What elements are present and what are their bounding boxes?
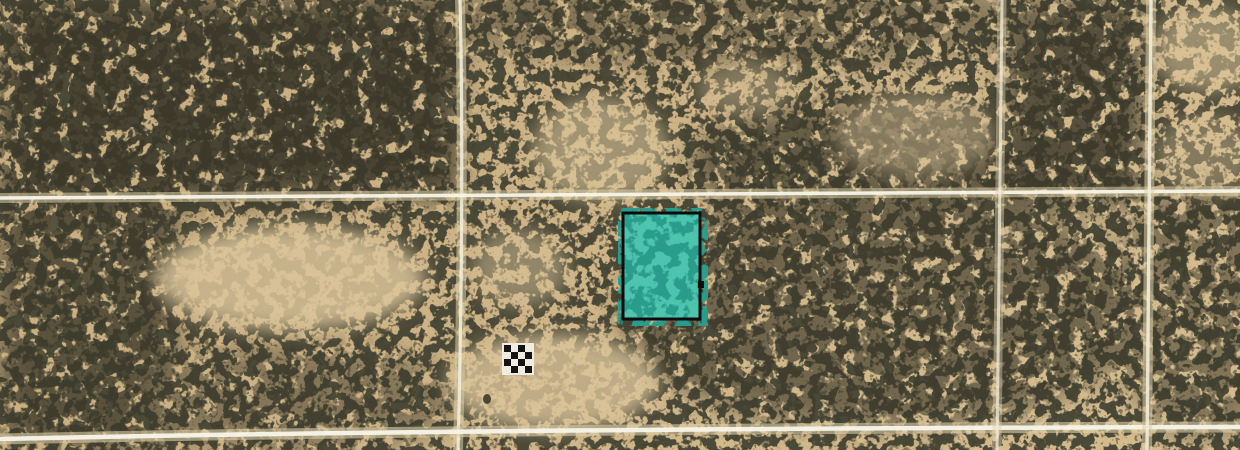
marker-cell [504, 359, 511, 366]
parcel-highlight[interactable] [623, 213, 704, 319]
marker-cell [525, 352, 532, 359]
marker-cell [525, 359, 532, 366]
parcel-fill [623, 213, 700, 319]
marker-cell [518, 366, 525, 373]
marker-cell [504, 345, 511, 352]
marker-cell [511, 366, 518, 373]
survey-marker [502, 343, 534, 375]
satellite-image [0, 0, 1240, 450]
marker-cell [518, 345, 525, 352]
survey-marker-cells [504, 345, 532, 373]
marker-cell [511, 359, 518, 366]
marker-cell [518, 352, 525, 359]
marker-cell [525, 366, 532, 373]
marker-cell [504, 352, 511, 359]
parcel-border-notch [698, 281, 704, 288]
marker-cell [518, 359, 525, 366]
map-canvas[interactable] [0, 0, 1240, 450]
marker-cell [511, 345, 518, 352]
marker-cell [504, 366, 511, 373]
marker-cell [525, 345, 532, 352]
marker-cell [511, 352, 518, 359]
small-ground-object [483, 394, 491, 404]
